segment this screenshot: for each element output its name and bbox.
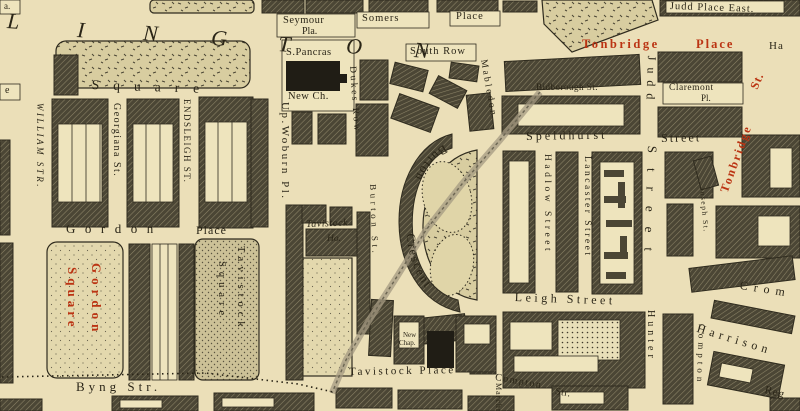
mabledon-pl-label: Mabledon	[478, 59, 498, 118]
fragment-ha: Ha	[769, 41, 784, 52]
gordon-square-label: Gordon	[90, 263, 103, 336]
william-str-label: WILLIAM STR.	[35, 103, 44, 189]
harrison-st-label: Harrison	[695, 322, 773, 356]
st-pancras-label: S.Pancras	[286, 48, 332, 59]
new-church-label: New Ch.	[288, 92, 329, 103]
tavistock-square-label: Tavistock	[235, 246, 246, 332]
somers-place-label-2: Place	[456, 12, 484, 23]
tavistock-house-label-2: Ho.	[327, 235, 341, 245]
judd-place-east-label: Judd Place East.	[670, 2, 755, 15]
fragment-e: e	[5, 86, 9, 96]
judd-street-label: Judd	[644, 56, 658, 107]
tavistock-square-label-2: Square	[216, 261, 227, 320]
south-row-label: South Row	[410, 47, 466, 58]
somers-place-label: Somers	[362, 14, 400, 25]
historic-bloomsbury-map: Burton Crescent a.LINGTONSeymourPla.Some…	[0, 0, 800, 411]
burton-st-label: Burton St.	[368, 184, 380, 256]
claremont-pl-label-2: Pl.	[701, 94, 711, 103]
lancaster-street-label: Lancaster Street	[582, 156, 592, 257]
speldhurst-street-label: Speldhurst	[526, 129, 608, 142]
bidborough-st-label: Bidborough St.	[536, 83, 598, 92]
new-chapel-label-2: Chap.	[399, 340, 416, 347]
road-letter-n1: N	[142, 22, 158, 45]
tonbridge-st-label: Tonbridge	[718, 123, 754, 194]
tonbridge-place-label-2: Place	[696, 38, 734, 51]
endsleigh-st-label: ENDSLEIGH ST.	[182, 99, 191, 183]
byng-str-label: Byng Str.	[76, 380, 161, 393]
hadlow-street-label: Hadlow Street	[542, 154, 552, 254]
leigh-street-label: Leigh Street	[515, 291, 616, 307]
judd-street-label-2: Street	[642, 146, 659, 267]
gordon-place-label: Gordon	[66, 222, 163, 235]
tavistock-place-label: Tavistock Place	[349, 365, 456, 378]
joseph-st-label: Joseph St.	[699, 187, 710, 233]
marchmont-st-label: Marchmont	[494, 383, 502, 411]
road-letter-l: L	[6, 10, 20, 33]
dukes-row-label: Dukes Row	[347, 66, 361, 134]
street-name-labels: a.LINGTONSeymourPla.SomersPlaceJudd Plac…	[0, 0, 800, 411]
road-letter-g: G	[210, 27, 227, 50]
georgiana-st-label: Georgiana St.	[111, 103, 121, 177]
gordon-square-label-2: Square	[66, 267, 79, 331]
gordon-place-label-2: Place	[196, 224, 227, 236]
new-chapel-label: New	[403, 332, 416, 339]
tonbridge-place-label: Tonbridge	[582, 38, 660, 51]
road-letter-i: I	[76, 19, 85, 41]
euston-square-label: Square	[92, 78, 214, 96]
hunter-street-label: Hunter	[645, 310, 655, 362]
up-woburn-pl-label: Up.Woburn Pl.	[279, 102, 290, 201]
seymour-place-label-2: Pla.	[302, 27, 317, 37]
tavistock-house-label: Tavistock	[306, 219, 348, 230]
road-letter-o: O	[345, 35, 362, 58]
seymour-place-label: Seymour	[283, 16, 324, 27]
speldhurst-street-label-2: Street	[661, 131, 701, 144]
regent-square-fragment: Reg	[763, 385, 786, 401]
cromer-st-label: Crom	[739, 279, 792, 299]
compton-str-label-2: Str.	[554, 387, 571, 400]
tonbridge-st-label-2: St.	[748, 71, 766, 91]
